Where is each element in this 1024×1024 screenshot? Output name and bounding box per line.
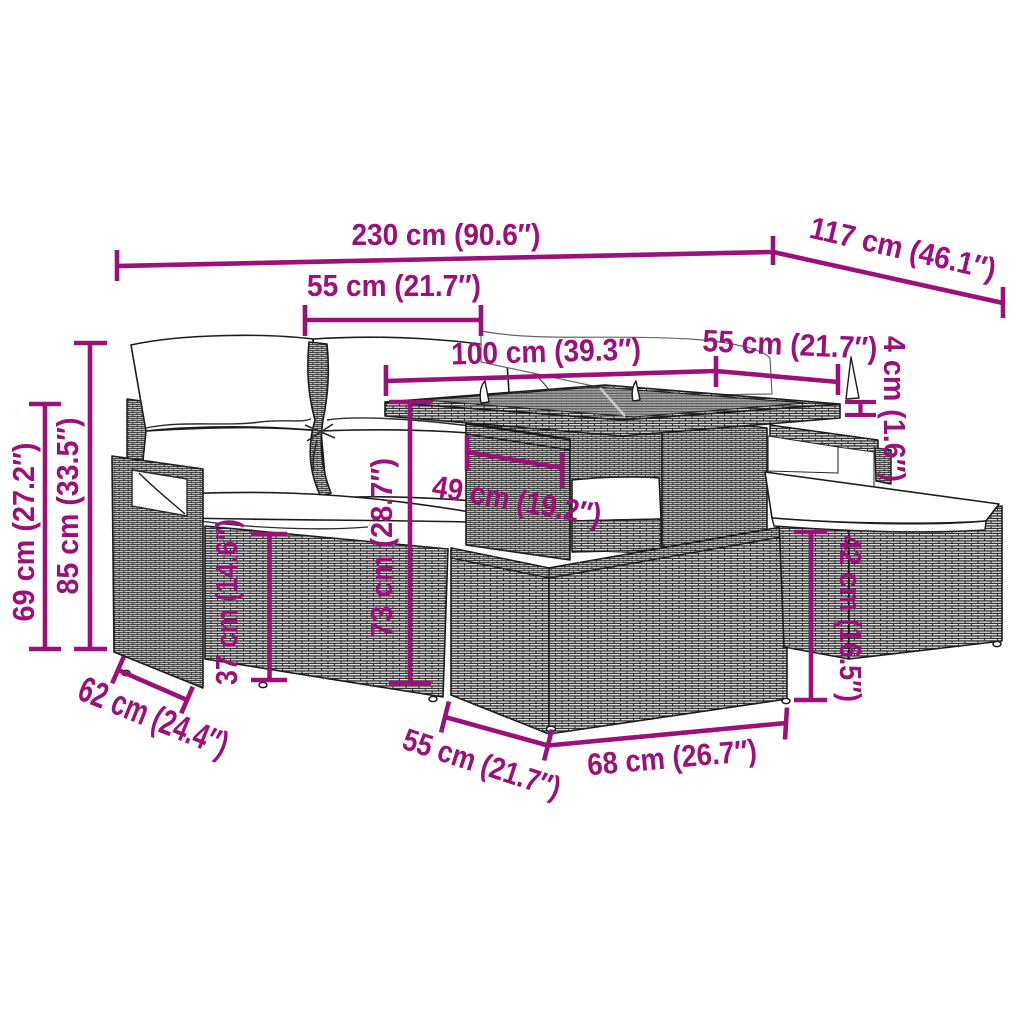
svg-text:230 cm (90.6″): 230 cm (90.6″) — [352, 217, 541, 252]
svg-text:55 cm (21.7″): 55 cm (21.7″) — [307, 268, 481, 303]
svg-text:37 cm (14.6″): 37 cm (14.6″) — [209, 519, 244, 685]
svg-text:4 cm (1.6″): 4 cm (1.6″) — [877, 336, 912, 482]
svg-text:55 cm (21.7″): 55 cm (21.7″) — [398, 721, 565, 805]
svg-text:69 cm (27.2″): 69 cm (27.2″) — [6, 443, 41, 622]
svg-text:73 cm (28.7″): 73 cm (28.7″) — [364, 458, 399, 638]
svg-text:85 cm (33.5″): 85 cm (33.5″) — [50, 418, 85, 595]
svg-text:42 cm (16.5″): 42 cm (16.5″) — [833, 535, 868, 702]
svg-text:100 cm (39.3″): 100 cm (39.3″) — [451, 332, 642, 372]
svg-text:117 cm (46.1″): 117 cm (46.1″) — [806, 210, 999, 287]
